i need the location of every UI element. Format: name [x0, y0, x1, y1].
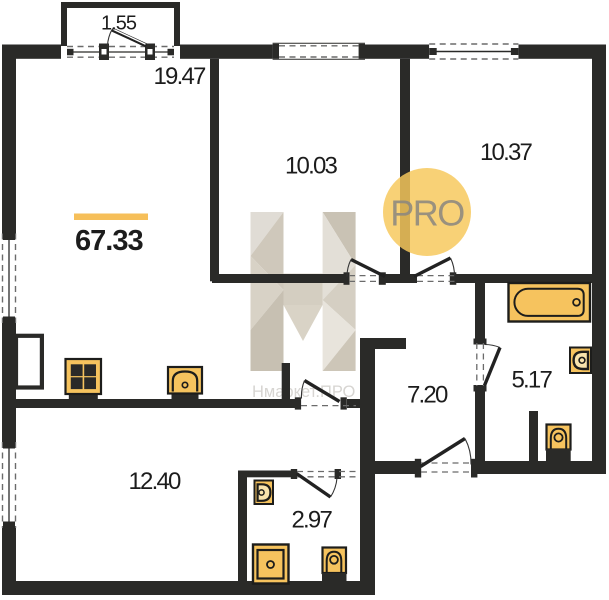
svg-text:5.17: 5.17 — [512, 367, 553, 394]
svg-text:1.55: 1.55 — [101, 13, 137, 35]
svg-text:Нмаркет.ПРО: Нмаркет.ПРО — [252, 383, 355, 401]
svg-text:12.40: 12.40 — [129, 468, 182, 495]
svg-text:PRO: PRO — [390, 193, 464, 234]
svg-text:19.47: 19.47 — [154, 63, 207, 90]
svg-text:7.20: 7.20 — [407, 382, 448, 409]
svg-text:10.37: 10.37 — [480, 139, 533, 166]
svg-text:2.97: 2.97 — [292, 507, 333, 534]
svg-text:10.03: 10.03 — [285, 153, 338, 180]
svg-text:67.33: 67.33 — [75, 225, 143, 257]
